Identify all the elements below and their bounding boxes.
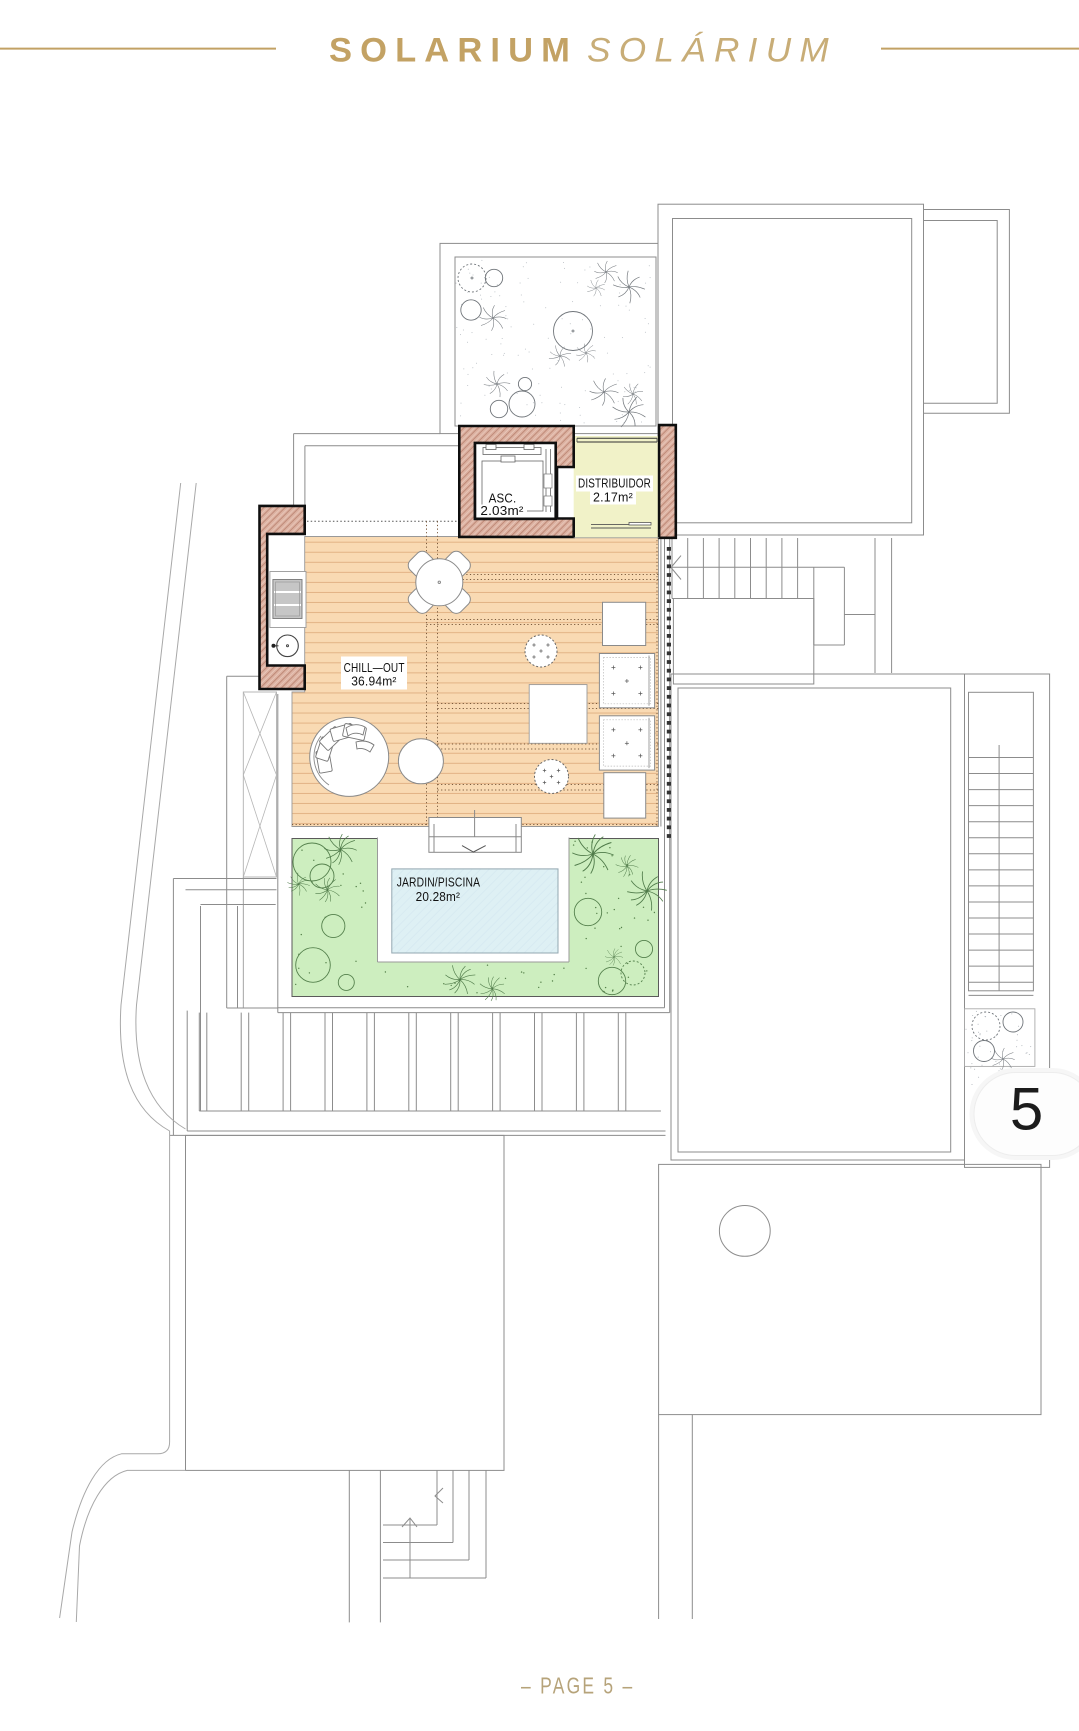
svg-text:– PAGE 5 –: – PAGE 5 – bbox=[521, 1673, 635, 1699]
svg-text:2.03m²: 2.03m² bbox=[480, 503, 524, 518]
svg-text:20.28m²: 20.28m² bbox=[416, 889, 461, 904]
svg-text:JARDIN/PISCINA: JARDIN/PISCINA bbox=[397, 875, 480, 890]
svg-text:5: 5 bbox=[1010, 1076, 1043, 1143]
svg-text:36.94m²: 36.94m² bbox=[351, 674, 397, 689]
svg-text:SOLÁRIUM: SOLÁRIUM bbox=[587, 32, 837, 70]
svg-text:SOLARIUM: SOLARIUM bbox=[329, 32, 578, 70]
svg-text:2.17m²: 2.17m² bbox=[593, 490, 633, 505]
svg-text:DISTRIBUIDOR: DISTRIBUIDOR bbox=[578, 476, 651, 491]
